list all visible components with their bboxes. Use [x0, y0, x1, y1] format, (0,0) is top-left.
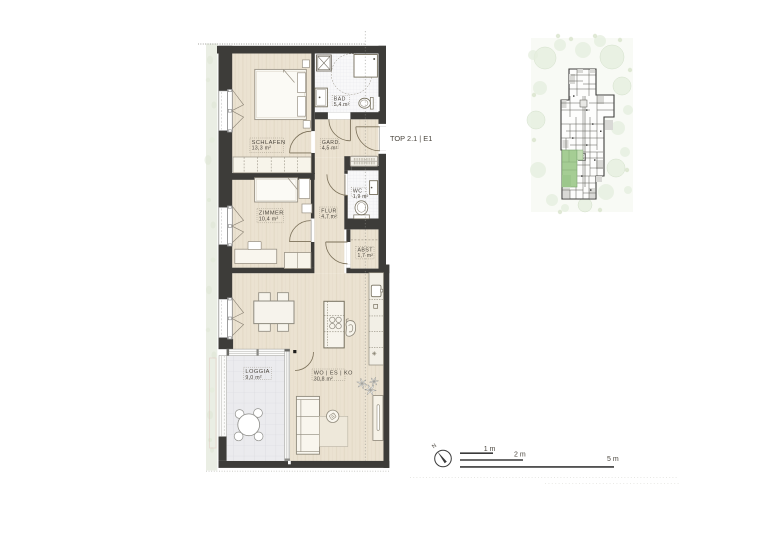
svg-text:4,5 m²: 4,5 m² [322, 146, 338, 152]
svg-text:30,8 m²: 30,8 m² [314, 376, 333, 382]
svg-text:13,3 m²: 13,3 m² [252, 146, 272, 152]
svg-text:1,9 m²: 1,9 m² [353, 194, 369, 200]
svg-text:9,0 m²: 9,0 m² [245, 375, 262, 381]
svg-text:5,4 m²: 5,4 m² [334, 102, 350, 108]
svg-text:1,7 m²: 1,7 m² [358, 253, 374, 259]
svg-text:2 m: 2 m [514, 451, 526, 458]
svg-text:4,7 m²: 4,7 m² [321, 214, 337, 220]
svg-text:5 m: 5 m [607, 456, 619, 463]
svg-text:1 m: 1 m [484, 446, 496, 453]
svg-text:TOP 2.1 | E1: TOP 2.1 | E1 [390, 134, 432, 143]
svg-text:N: N [431, 443, 438, 450]
svg-text:10,4 m²: 10,4 m² [259, 216, 279, 222]
